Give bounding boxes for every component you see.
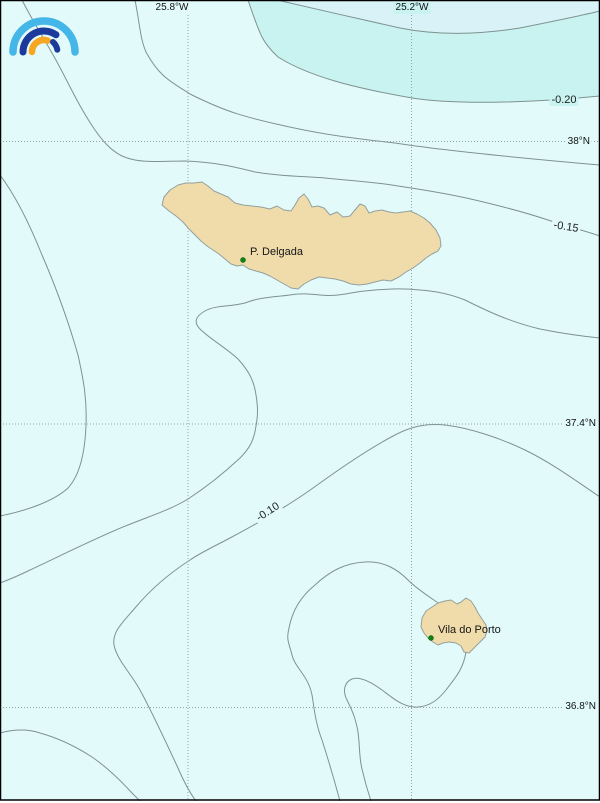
- place-label-vila-do-porto: Vila do Porto: [438, 624, 501, 636]
- sea-base-region: [0, 0, 600, 800]
- marker-p-delgada[interactable]: [241, 258, 246, 263]
- tick-label-38n: 38°N: [566, 136, 592, 148]
- contour-label-neg020: -0.20: [549, 94, 578, 106]
- tick-label-25-8w: 25.8°W: [154, 2, 191, 14]
- tick-label-25-2w: 25.2°W: [394, 2, 431, 14]
- map-window: 25.8°W 25.2°W 38°N 37.4°N 36.8°N -0.20 -…: [0, 0, 600, 803]
- tick-label-37-4n: 37.4°N: [563, 418, 598, 430]
- tick-label-36-8n: 36.8°N: [563, 701, 598, 713]
- marker-vila-do-porto[interactable]: [429, 636, 434, 641]
- place-label-p-delgada: P. Delgada: [250, 246, 303, 258]
- contour-map-canvas[interactable]: [0, 0, 600, 801]
